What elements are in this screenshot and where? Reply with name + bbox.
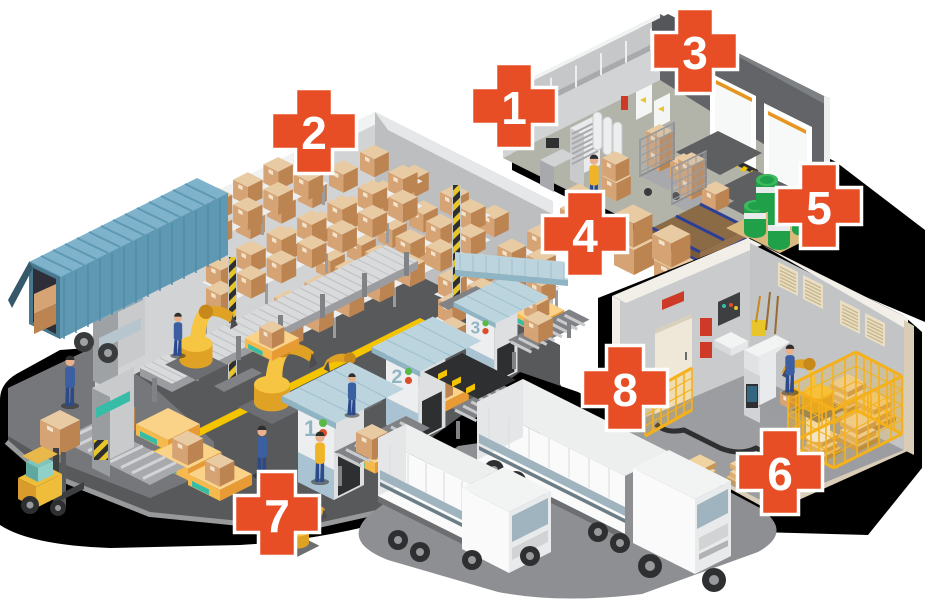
svg-text:1: 1 xyxy=(501,82,527,134)
svg-text:2: 2 xyxy=(301,107,327,159)
svg-text:6: 6 xyxy=(767,448,793,500)
svg-text:5: 5 xyxy=(806,182,832,234)
svg-text:1: 1 xyxy=(304,416,316,441)
svg-text:4: 4 xyxy=(572,210,598,262)
svg-text:8: 8 xyxy=(612,364,638,416)
svg-text:7: 7 xyxy=(264,490,290,542)
svg-text:3: 3 xyxy=(682,27,708,79)
svg-text:3: 3 xyxy=(471,317,481,337)
